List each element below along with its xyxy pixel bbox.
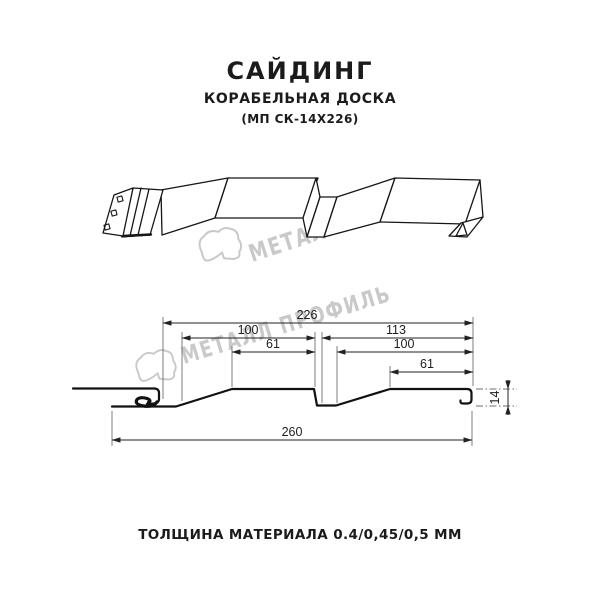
technical-drawing: МЕТАЛЛ ПРОФИЛЬ МЕТАЛЛ ПРОФИЛЬ bbox=[0, 0, 600, 600]
dim-label-113: 113 bbox=[386, 323, 406, 337]
watermark-text: МЕТАЛЛ ПРОФИЛЬ bbox=[178, 281, 394, 370]
board1-top-face bbox=[215, 178, 318, 218]
metall-profil-logo-icon bbox=[135, 348, 178, 383]
product-drawing-page: САЙДИНГ КОРАБЕЛЬНАЯ ДОСКА (МП СК-14Х226)… bbox=[0, 0, 600, 600]
dim-label-61-left: 61 bbox=[266, 337, 280, 351]
metall-profil-logo-icon bbox=[198, 226, 243, 263]
slope-face-1 bbox=[161, 178, 228, 235]
lock-bottom-edge bbox=[122, 235, 151, 237]
dim-label-100-right: 100 bbox=[394, 337, 415, 351]
right-end-edge bbox=[480, 180, 483, 217]
material-thickness-note: ТОЛЩИНА МАТЕРИАЛА 0.4/0,45/0,5 ММ bbox=[0, 527, 600, 543]
dim-label-260: 260 bbox=[282, 425, 303, 439]
dim-label-226: 226 bbox=[297, 308, 318, 322]
lock-seam bbox=[136, 398, 157, 407]
dim-label-100-left: 100 bbox=[238, 323, 259, 337]
dim-label-61-right: 61 bbox=[420, 357, 434, 371]
board2-top-face bbox=[380, 178, 480, 224]
adjacent-panel-edge bbox=[73, 389, 159, 405]
section-outline bbox=[112, 389, 472, 407]
watermark-section: МЕТАЛЛ ПРОФИЛЬ bbox=[135, 281, 395, 383]
profile-section-view bbox=[73, 389, 472, 407]
dim-label-14: 14 bbox=[488, 391, 502, 405]
